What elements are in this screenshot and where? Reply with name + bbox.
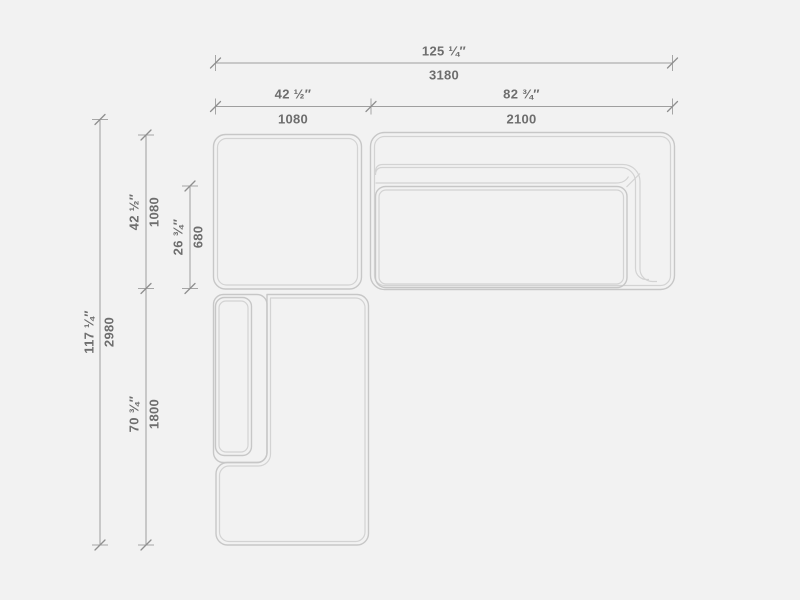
left-module-width-metric-label: 1080 [278,112,308,125]
left-module-width-imperial-label: 42 ½″ [275,88,312,101]
overall-width-imperial-label: 125 ¼″ [422,45,466,58]
chaise-module-outline [214,294,369,545]
sofa-plan-linework [0,0,800,600]
seat-depth-metric-label: 680 [192,226,205,249]
upper-module-depth-imperial-label: 42 ½″ [127,194,140,231]
right-module-width-metric-label: 2100 [506,112,536,125]
backrest-line [376,165,658,282]
sofa-module-outline [371,133,675,290]
corner-module-outline [214,135,362,290]
overall-width-metric-label: 3180 [429,69,459,82]
seat-deck-line [376,177,629,184]
seat-cushion-outline [376,187,628,288]
chaise-length-imperial-label: 70 ¾″ [127,396,140,433]
sectional-sofa-outline [214,133,675,546]
seat-depth-imperial-label: 26 ¾″ [171,219,184,256]
backrest-inner-line [376,168,650,280]
chaise-arm-outline [214,295,268,463]
chaise-length-metric-label: 1800 [148,399,161,429]
overall-depth-imperial-label: 117 ¼″ [82,310,95,353]
overall-depth-metric-label: 2980 [102,317,115,347]
right-module-width-imperial-label: 82 ¾″ [503,88,540,101]
dimension-lines [92,55,678,550]
sofa-dimension-drawing: 125 ¼″ 3180 42 ½″ 1080 82 ¾″ 2100 117 ¼″… [0,0,800,600]
corner-mitre-line [627,174,641,188]
upper-module-depth-metric-label: 1080 [148,197,161,227]
dimension-ticks [92,55,678,550]
chaise-seat-outline [216,294,369,545]
